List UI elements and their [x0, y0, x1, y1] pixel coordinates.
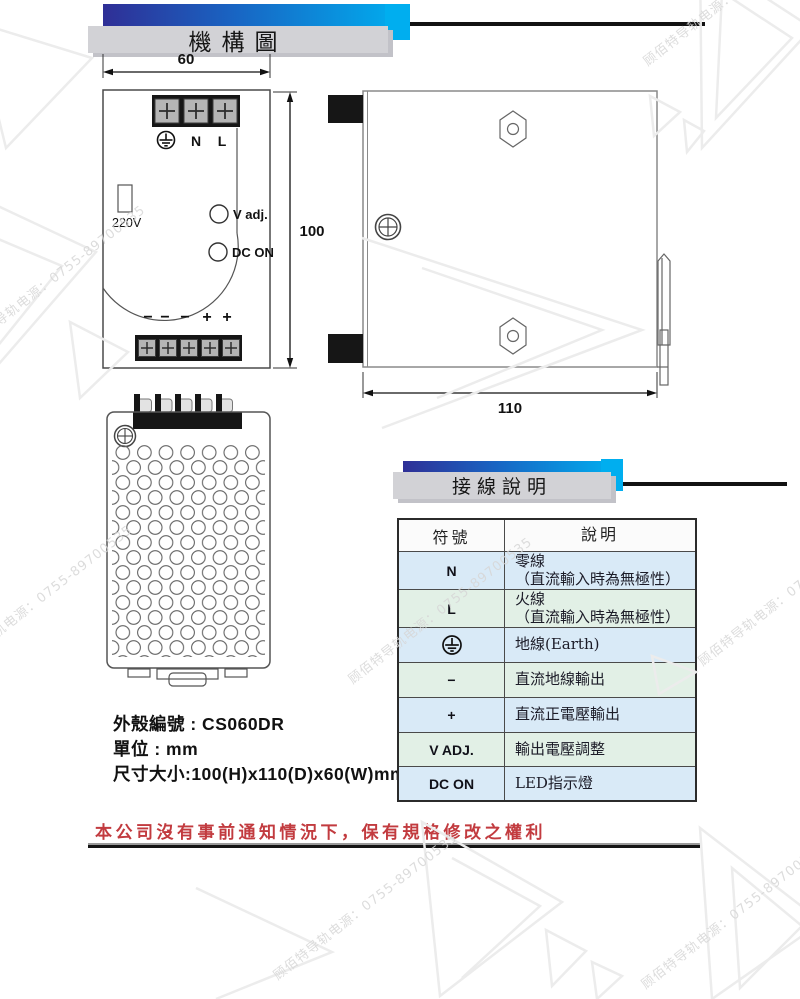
voltage-label: 220V: [112, 216, 142, 230]
datasheet-page: 顾佰特导轨电源：0755-89700535 顾佰特导轨电源：0755-89700…: [0, 0, 800, 999]
table-cell-desc: 直流地線輸出: [505, 663, 695, 697]
watermark-text: 顾佰特导轨电源：0755-89700535: [693, 514, 800, 670]
terminal-n-label: N: [191, 133, 201, 149]
polarity-label: −: [143, 309, 152, 326]
wiring-banner: 接線說明: [393, 472, 611, 499]
wiring-banner-gradient: [403, 461, 615, 472]
dim-depth-label: 110: [498, 400, 522, 417]
wiring-table: 符號 說明 N 零線 （直流輸入時為無極性） L 火線 （直流輸入時為無極性）: [397, 518, 697, 802]
table-cell-desc: 地線(Earth): [505, 628, 695, 662]
watermark-text: 顾佰特导轨电源：0755-89700535: [636, 837, 800, 993]
desc-line: LED指示燈: [515, 775, 695, 793]
table-cell-symbol: −: [399, 663, 505, 697]
desc-line: 直流正電壓輸出: [515, 706, 695, 724]
earth-icon: [441, 634, 463, 656]
table-header-row: 符號 說明: [399, 520, 695, 551]
table-row: DC ON LED指示燈: [399, 766, 695, 800]
unit-line: 單位 : mm: [113, 737, 406, 762]
case-number-line: 外殼編號 : CS060DR: [113, 712, 406, 737]
desc-line: 直流地線輸出: [515, 671, 695, 689]
desc-line: 零線: [515, 553, 695, 571]
mechanism-banner-rule: [398, 22, 705, 26]
desc-line: 地線(Earth): [515, 636, 695, 654]
desc-line: 輸出電壓調整: [515, 741, 695, 759]
specs-block: 外殼編號 : CS060DR 單位 : mm 尺寸大小:100(H)x110(D…: [113, 712, 406, 787]
wiring-banner-rule: [623, 482, 787, 486]
desc-line: （直流輸入時為無極性）: [515, 571, 695, 589]
table-cell-symbol: V ADJ.: [399, 733, 505, 766]
table-cell-symbol: +: [399, 698, 505, 732]
table-row: 地線(Earth): [399, 627, 695, 662]
size-line: 尺寸大小:100(H)x110(D)x60(W)mm: [113, 762, 406, 787]
notice-text: 本公司沒有事前通知情況下，保有規格修改之權利: [95, 818, 546, 843]
polarity-label: −: [180, 309, 189, 326]
desc-line: （直流輸入時為無極性）: [515, 609, 695, 627]
watermark-text: 顾佰特导轨电源：0755-89700535: [638, 0, 800, 69]
polarity-label: +: [222, 309, 231, 326]
table-header-symbol: 符號: [399, 520, 505, 551]
table-cell-desc: 零線 （直流輸入時為無極性）: [505, 552, 695, 589]
table-cell-desc: 輸出電壓調整: [505, 733, 695, 766]
table-header-desc: 說明: [505, 520, 695, 551]
table-cell-desc: LED指示燈: [505, 767, 695, 800]
table-row: N 零線 （直流輸入時為無極性）: [399, 551, 695, 589]
earth-icon: [158, 132, 175, 149]
table-row: + 直流正電壓輸出: [399, 697, 695, 732]
dcon-label: DC ON: [232, 245, 274, 260]
table-cell-symbol: DC ON: [399, 767, 505, 800]
polarity-label: +: [202, 309, 211, 326]
dim-width-label: 60: [178, 51, 195, 68]
table-cell-symbol: N: [399, 552, 505, 589]
desc-line: 火線: [515, 591, 695, 609]
perforated-view-drawing: [95, 385, 290, 700]
watermark-text: 顾佰特导轨电源：0755-89700535: [268, 828, 460, 984]
notice-rule-thick: [88, 845, 700, 848]
mechanism-banner-cyan-block: [385, 4, 410, 40]
table-cell-desc: 直流正電壓輸出: [505, 698, 695, 732]
table-row: L 火線 （直流輸入時為無極性）: [399, 589, 695, 627]
table-cell-symbol: L: [399, 590, 505, 627]
side-view-drawing: 110: [320, 80, 690, 425]
table-cell-desc: 火線 （直流輸入時為無極性）: [505, 590, 695, 627]
table-row: V ADJ. 輸出電壓調整: [399, 732, 695, 766]
polarity-label: −: [160, 309, 169, 326]
table-row: − 直流地線輸出: [399, 662, 695, 697]
vadj-label: V adj.: [233, 207, 268, 222]
table-cell-symbol: [399, 628, 505, 662]
wiring-banner-title: 接線說明: [452, 472, 552, 499]
terminal-l-label: L: [218, 133, 227, 149]
